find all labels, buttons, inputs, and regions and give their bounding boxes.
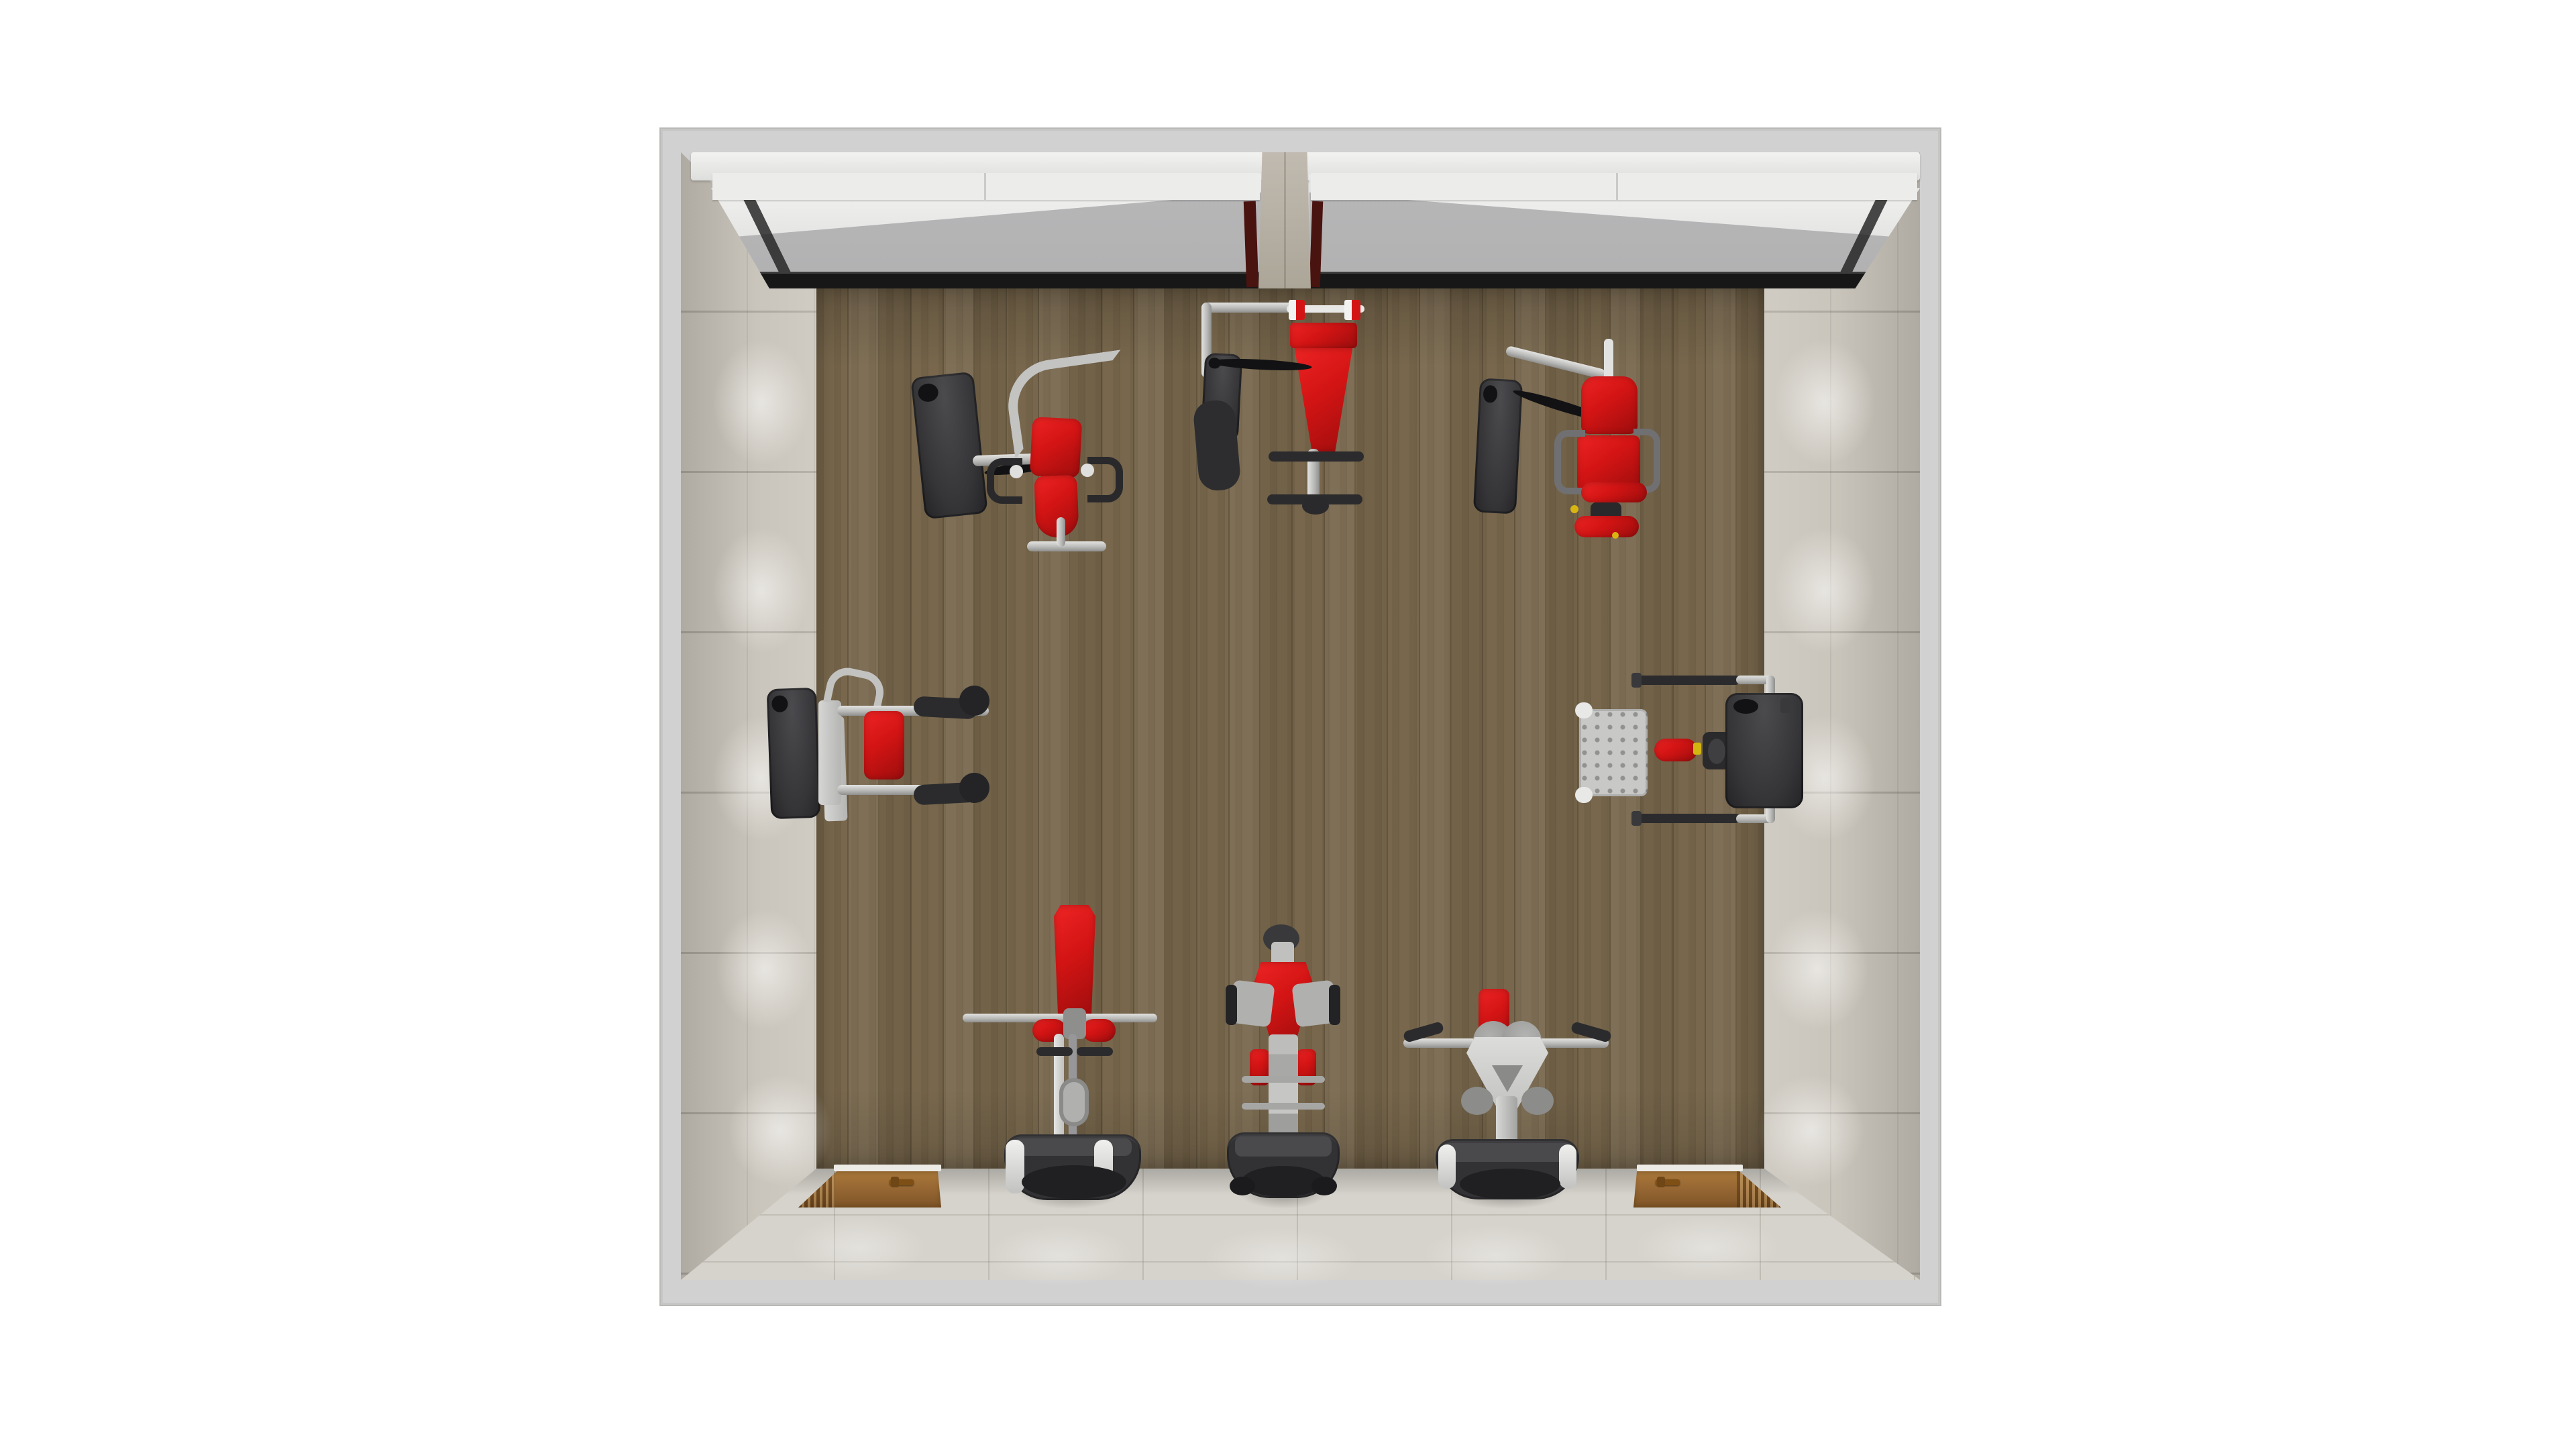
handlebar-top xyxy=(1637,676,1740,685)
frame-tube xyxy=(1505,345,1606,380)
linkage xyxy=(1059,1078,1089,1126)
weight-stack xyxy=(1725,693,1803,808)
base-step xyxy=(1444,1143,1571,1162)
adjust-handle xyxy=(1604,339,1613,380)
render-canvas: Gym room - top view 3D render Seated row… xyxy=(0,0,2576,1449)
machine-chest-press xyxy=(765,671,989,832)
base-foot xyxy=(1230,1177,1255,1195)
grip-left xyxy=(1226,985,1237,1025)
window-sill-left xyxy=(711,274,1261,288)
arm-end-cap xyxy=(959,686,989,716)
roller-right xyxy=(1521,1087,1554,1115)
frame-stem xyxy=(1057,517,1065,547)
platform-bracket xyxy=(1575,702,1593,718)
base-platform xyxy=(1022,1165,1126,1199)
stack-hole xyxy=(771,695,788,712)
base-step xyxy=(1014,1138,1132,1156)
side-pad xyxy=(1192,399,1241,492)
selector-pin xyxy=(1612,532,1619,539)
chrome-peg xyxy=(1010,465,1023,478)
door-handle-left xyxy=(890,1179,914,1185)
machine-leg-extension xyxy=(1472,339,1654,540)
door-handle-right xyxy=(1656,1179,1680,1185)
bar-catch-left xyxy=(1289,300,1305,320)
blind-divider xyxy=(984,173,986,200)
handle-right xyxy=(1087,457,1123,502)
door-threshold-left xyxy=(834,1165,941,1171)
back-pad xyxy=(1581,376,1638,434)
seat-pad xyxy=(864,711,904,780)
grip-right xyxy=(1329,985,1340,1025)
base-rail-left xyxy=(1006,1140,1024,1193)
chrome-peg xyxy=(1081,464,1094,477)
door-threshold-right xyxy=(1637,1165,1743,1171)
leg-roller-top xyxy=(1581,482,1647,502)
cross-foot xyxy=(1269,451,1364,462)
head-pad xyxy=(1290,323,1357,348)
base-rail-left xyxy=(1438,1144,1456,1189)
selector-pin xyxy=(1693,743,1701,755)
foot-bar xyxy=(1027,541,1106,551)
platform-bracket xyxy=(1575,787,1593,803)
bar-catch-right xyxy=(1344,300,1360,320)
roller-pad xyxy=(1654,739,1697,761)
side-handle-left xyxy=(1554,430,1585,494)
weight-stack xyxy=(767,688,821,819)
base-foot xyxy=(1311,1177,1337,1195)
concrete-column xyxy=(1258,152,1311,288)
blind-divider xyxy=(1616,173,1618,200)
selector-pin xyxy=(1570,505,1578,513)
back-pad xyxy=(1030,417,1083,478)
machine-standing-calf-raise xyxy=(963,902,1157,1204)
machine-weight-bench xyxy=(1196,299,1367,520)
blind-housing-right xyxy=(1311,173,1917,200)
leg-roller-bottom xyxy=(1574,516,1639,537)
window-sill-right xyxy=(1309,274,1920,288)
blind-housing-left xyxy=(712,173,1260,200)
arm-end-cap xyxy=(959,773,989,803)
base-platform xyxy=(1460,1169,1560,1199)
machine-seated-row xyxy=(909,359,1130,560)
handlebar-bottom xyxy=(1637,814,1740,823)
handle-pommel xyxy=(1631,673,1642,688)
base-rail-right xyxy=(1559,1144,1576,1189)
weight-stack xyxy=(910,372,988,520)
shoulder-roller-right xyxy=(1082,1019,1116,1042)
mid-grip-right xyxy=(1077,1047,1113,1056)
stack-hole xyxy=(1733,699,1758,714)
stack-hole xyxy=(1483,385,1498,403)
handle-pommel xyxy=(1631,811,1642,826)
stack-hole xyxy=(1780,698,1790,713)
base-step xyxy=(1235,1136,1332,1157)
foot-cap xyxy=(1302,497,1329,515)
weight-stack xyxy=(1473,378,1523,514)
back-pad xyxy=(1054,905,1095,1018)
cross-bar xyxy=(1242,1103,1325,1110)
pivot-disc xyxy=(1708,739,1725,764)
mid-grip-left xyxy=(1036,1047,1073,1056)
center-column xyxy=(1269,1034,1298,1144)
machine-v-squat xyxy=(1223,924,1344,1201)
roller-left xyxy=(1461,1087,1493,1115)
machine-lateral-raise xyxy=(1403,987,1611,1202)
foot-platform xyxy=(1579,709,1648,796)
cross-bar xyxy=(1242,1076,1325,1083)
machine-calf-press xyxy=(1576,667,1805,832)
stack-hole xyxy=(918,382,940,403)
